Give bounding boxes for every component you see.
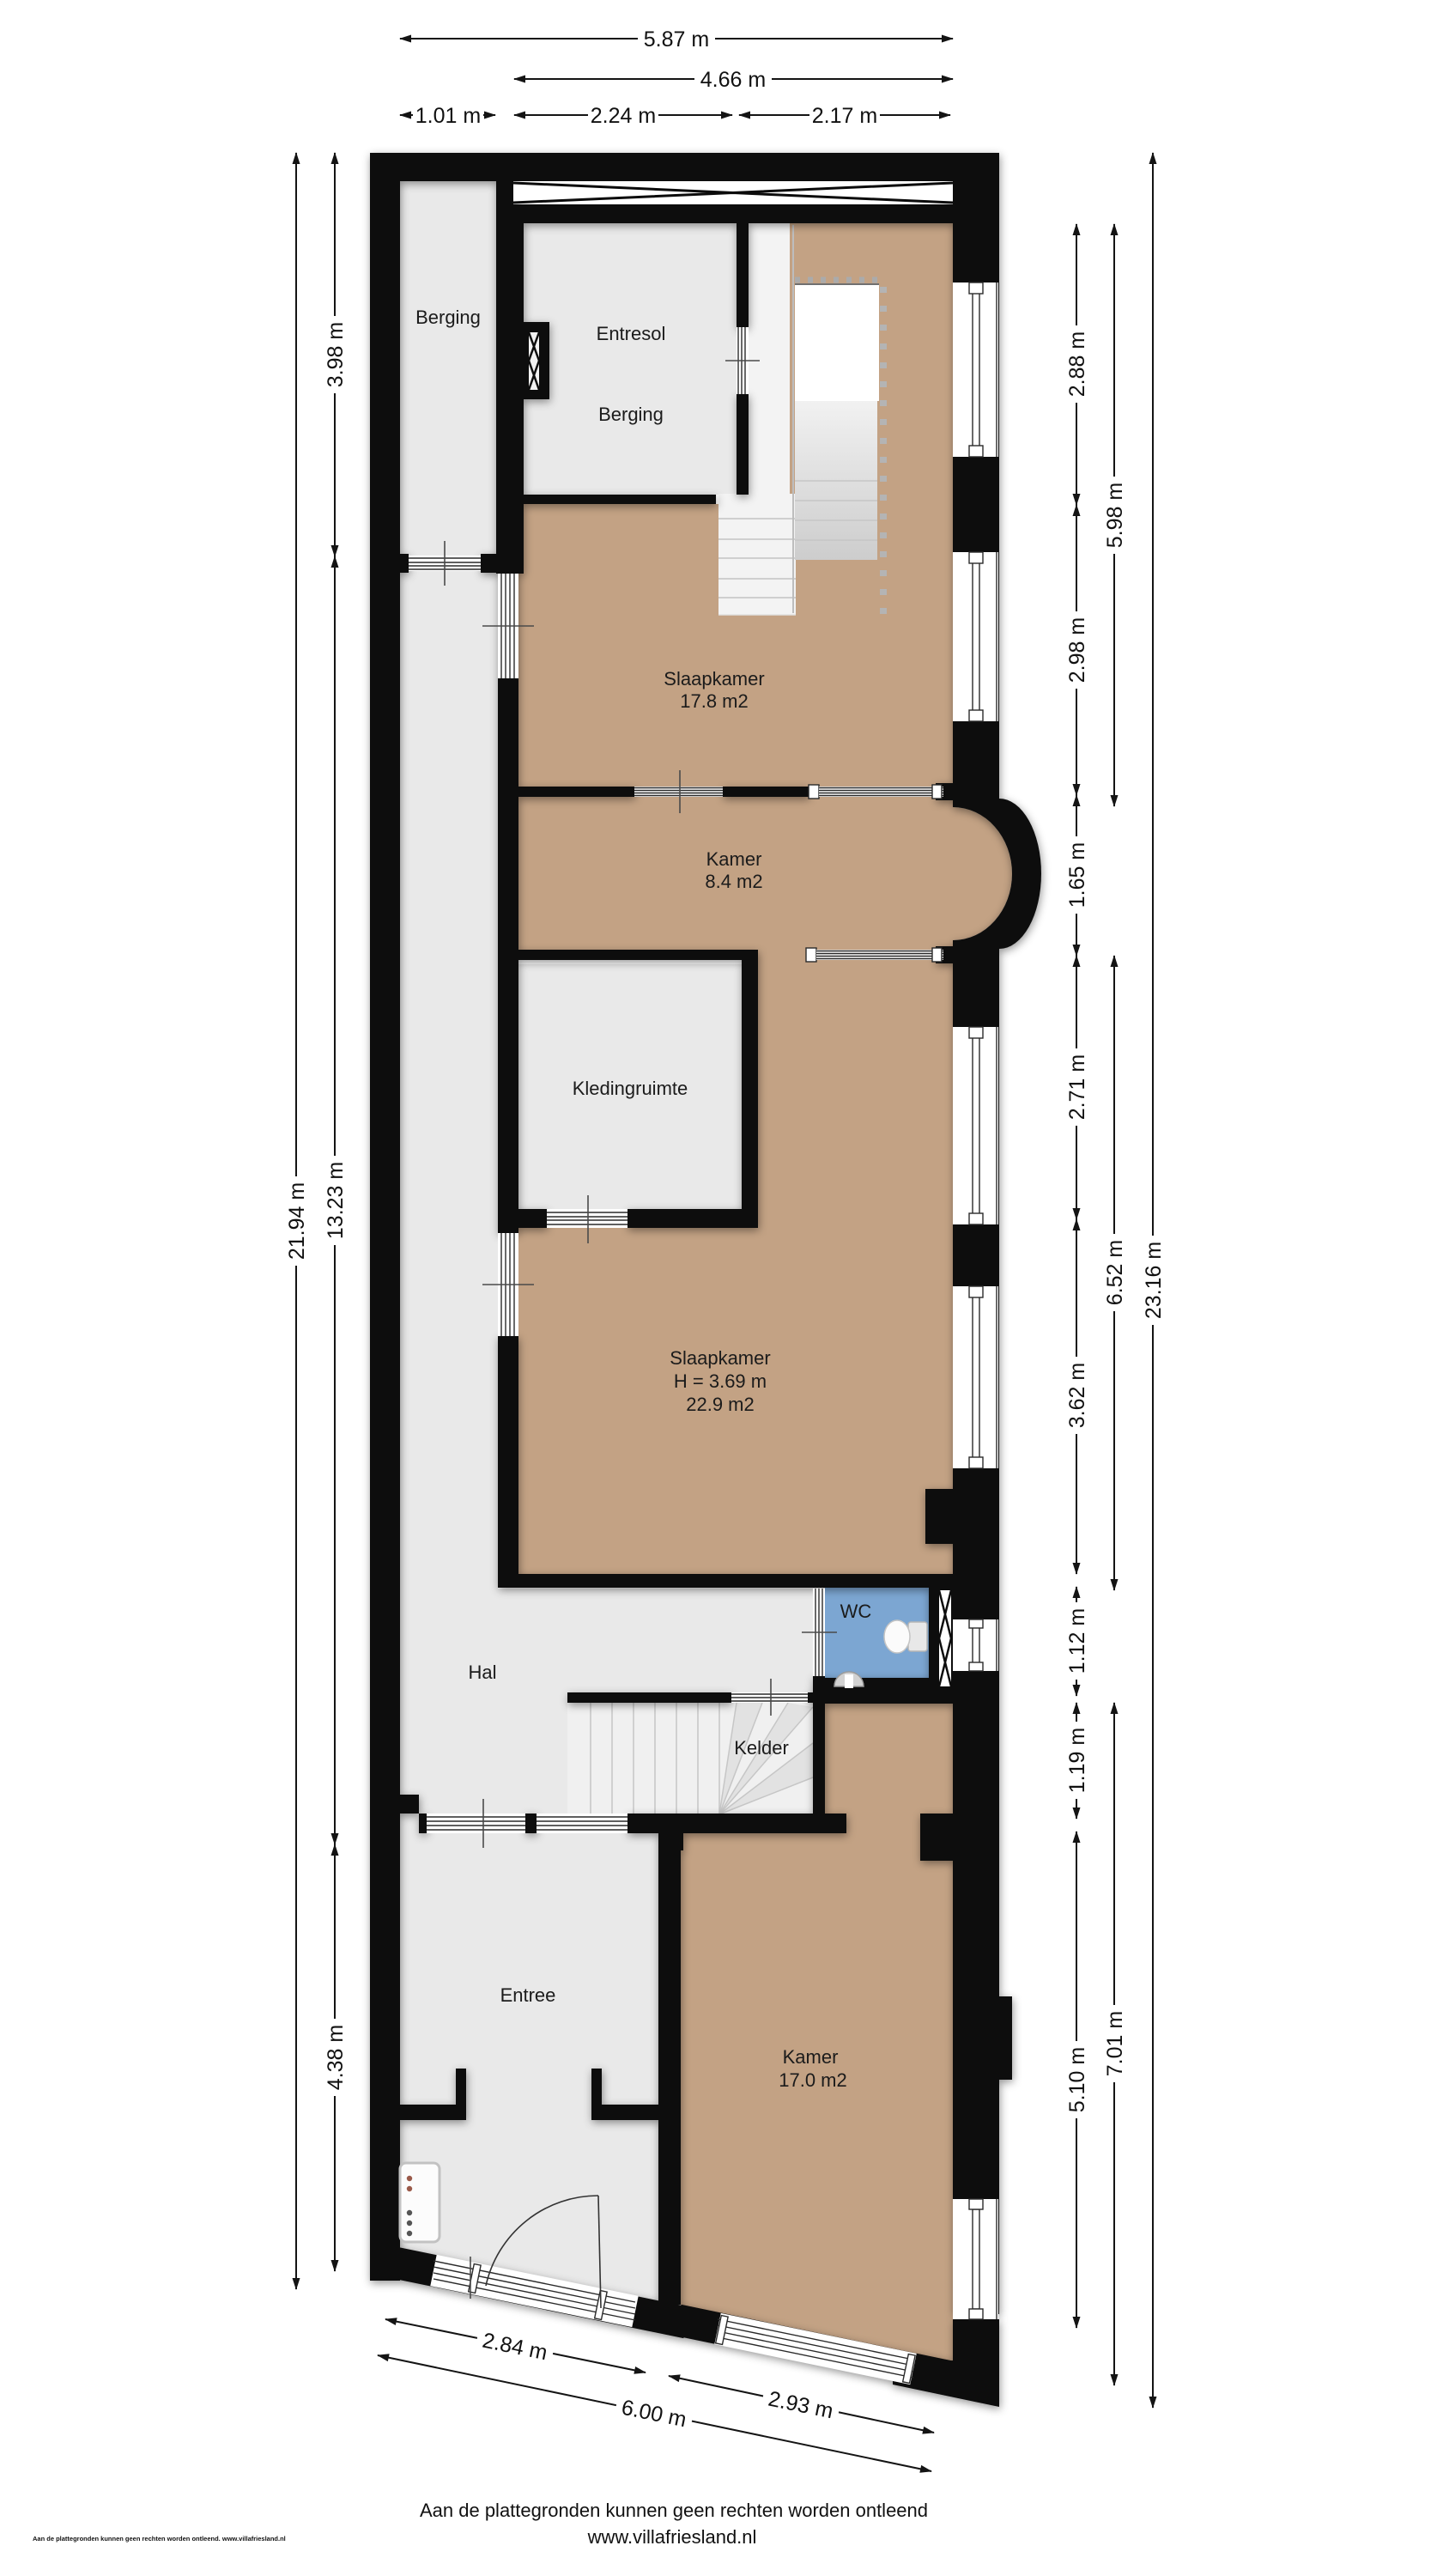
svg-text:Aan de plattegronden kunnen ge: Aan de plattegronden kunnen geen rechten… — [420, 2500, 928, 2521]
svg-text:1.12 m: 1.12 m — [1065, 1608, 1089, 1674]
svg-text:7.01 m: 7.01 m — [1103, 2011, 1127, 2076]
svg-text:13.23 m: 13.23 m — [324, 1162, 348, 1239]
svg-text:1.65 m: 1.65 m — [1065, 842, 1089, 908]
svg-text:2.88 m: 2.88 m — [1065, 331, 1089, 397]
svg-text:WC: WC — [840, 1601, 872, 1622]
svg-text:5.98 m: 5.98 m — [1103, 483, 1127, 548]
svg-text:Slaapkamer: Slaapkamer — [664, 668, 764, 690]
svg-text:3.62 m: 3.62 m — [1065, 1363, 1089, 1428]
svg-text:17.0 m2: 17.0 m2 — [779, 2069, 847, 2091]
svg-text:8.4 m2: 8.4 m2 — [705, 871, 762, 892]
svg-text:5.10 m: 5.10 m — [1065, 2047, 1089, 2112]
svg-text:6.52 m: 6.52 m — [1103, 1240, 1127, 1305]
svg-text:4.66 m: 4.66 m — [700, 68, 766, 92]
svg-text:2.17 m: 2.17 m — [812, 104, 877, 128]
svg-text:Slaapkamer: Slaapkamer — [670, 1347, 770, 1369]
svg-text:Entree: Entree — [500, 1984, 556, 2006]
svg-text:Kamer: Kamer — [783, 2046, 839, 2068]
svg-text:Kamer: Kamer — [706, 848, 762, 870]
svg-text:5.87 m: 5.87 m — [644, 27, 709, 52]
svg-text:Hal: Hal — [468, 1662, 496, 1683]
svg-text:21.94 m: 21.94 m — [285, 1182, 309, 1260]
svg-text:Kledingruimte: Kledingruimte — [573, 1078, 688, 1099]
svg-text:Kelder: Kelder — [734, 1737, 789, 1759]
svg-text:2.71 m: 2.71 m — [1065, 1054, 1089, 1120]
svg-text:1.01 m: 1.01 m — [415, 104, 481, 128]
svg-text:H = 3.69 m: H = 3.69 m — [674, 1370, 767, 1392]
svg-text:Berging: Berging — [415, 307, 481, 328]
svg-text:2.24 m: 2.24 m — [591, 104, 656, 128]
svg-text:4.38 m: 4.38 m — [324, 2025, 348, 2090]
svg-text:1.19 m: 1.19 m — [1065, 1728, 1089, 1793]
svg-text:Aan de plattegronden kunnen ge: Aan de plattegronden kunnen geen rechten… — [33, 2535, 286, 2543]
svg-text:3.98 m: 3.98 m — [324, 322, 348, 387]
svg-text:Entresol: Entresol — [597, 323, 666, 344]
svg-text:22.9 m2: 22.9 m2 — [686, 1394, 755, 1415]
svg-text:www.villafriesland.nl: www.villafriesland.nl — [587, 2526, 757, 2548]
svg-text:23.16 m: 23.16 m — [1142, 1242, 1166, 1319]
svg-text:Berging: Berging — [598, 404, 664, 425]
svg-text:2.98 m: 2.98 m — [1065, 617, 1089, 683]
svg-text:17.8 m2: 17.8 m2 — [680, 690, 749, 712]
